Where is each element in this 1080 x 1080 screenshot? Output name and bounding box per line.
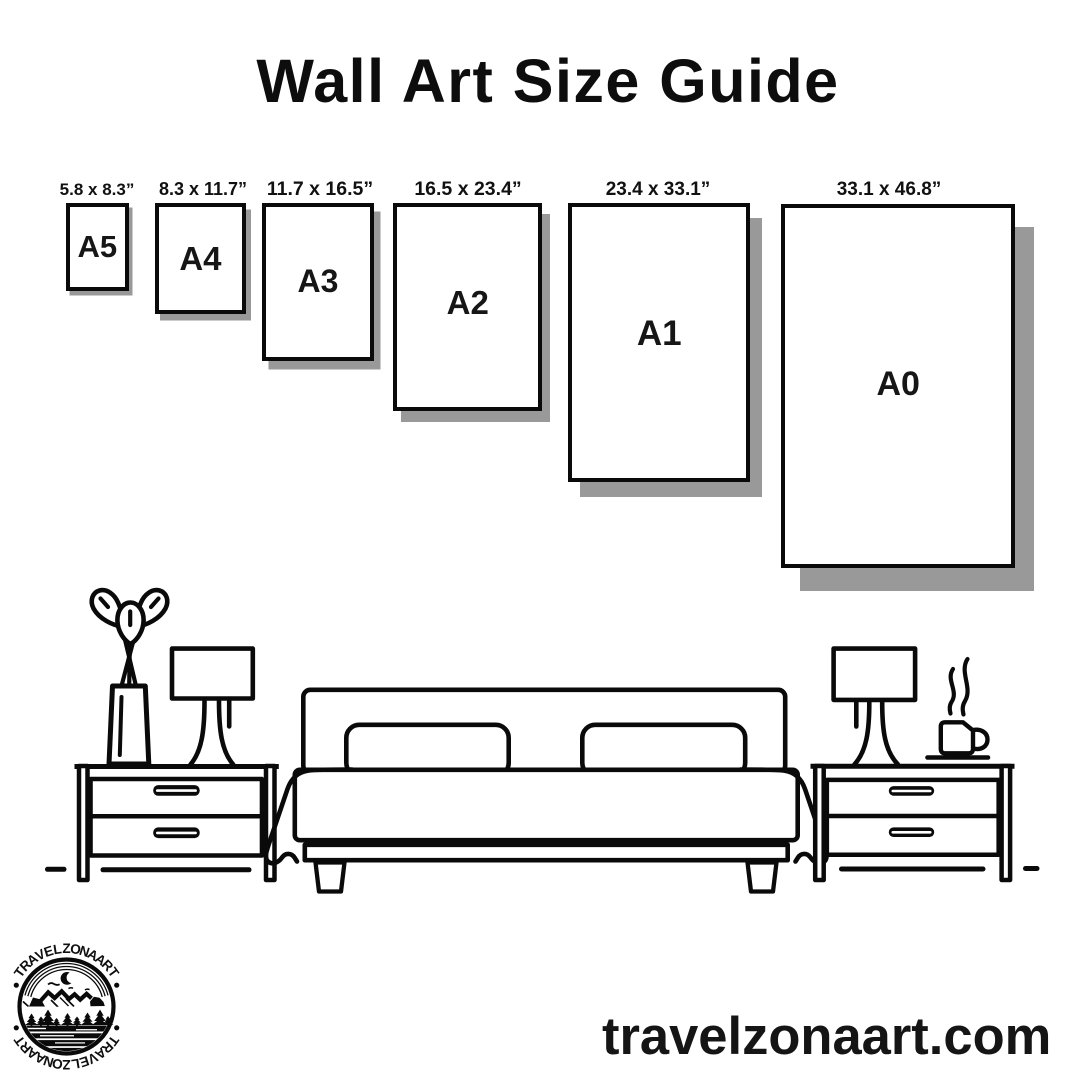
svg-text:L: L [52,941,63,957]
svg-text:L: L [70,1056,81,1072]
